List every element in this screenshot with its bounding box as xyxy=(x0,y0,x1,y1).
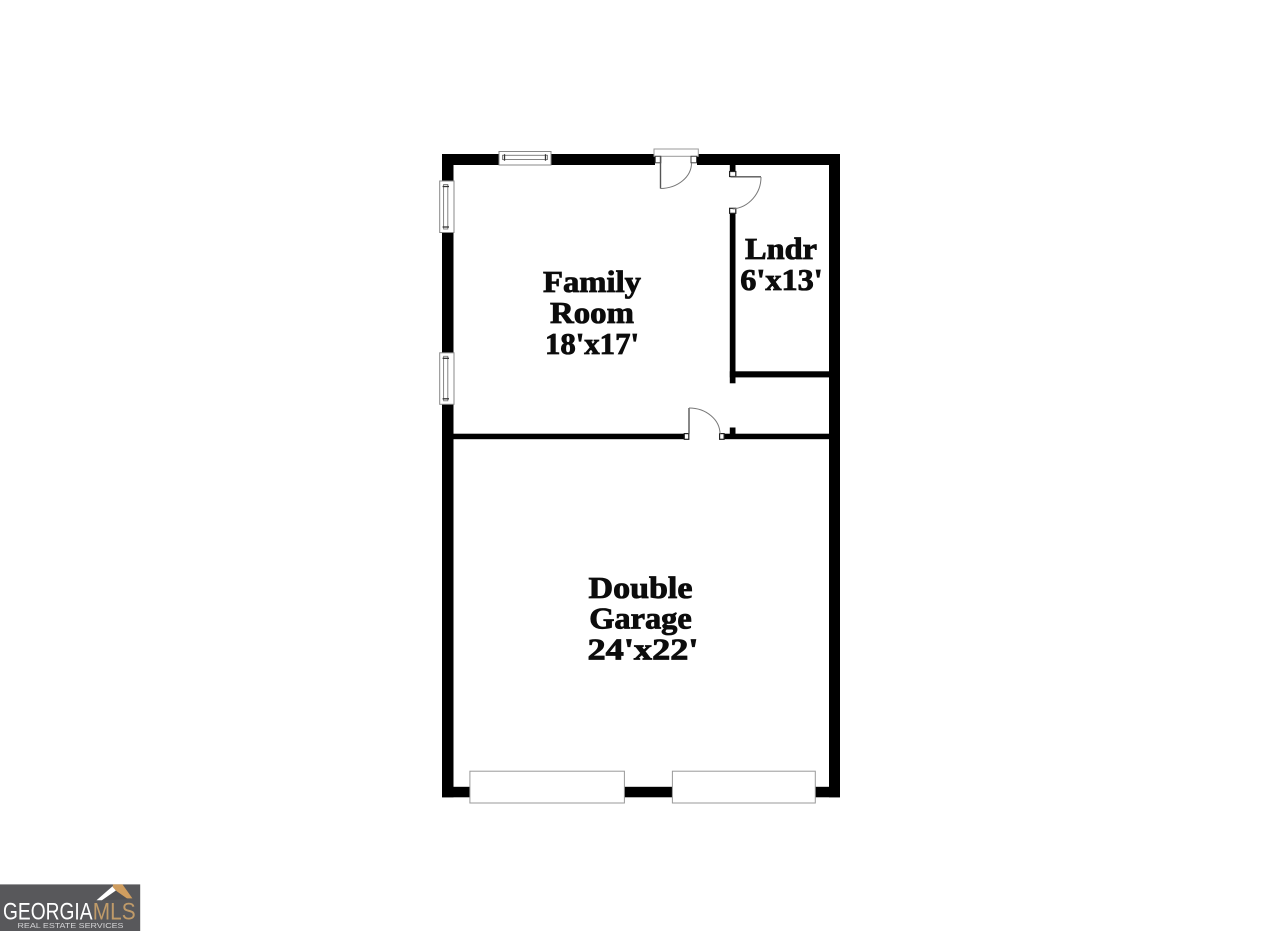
svg-text:Garage: Garage xyxy=(589,602,692,636)
svg-text:6'x13': 6'x13' xyxy=(740,263,823,297)
svg-text:REAL ESTATE SERVICES: REAL ESTATE SERVICES xyxy=(18,921,124,930)
svg-text:24'x22': 24'x22' xyxy=(588,632,699,666)
svg-text:18'x17': 18'x17' xyxy=(545,327,639,361)
svg-text:Double: Double xyxy=(589,571,693,605)
svg-text:Room: Room xyxy=(550,296,634,330)
svg-text:Lndr: Lndr xyxy=(745,232,817,266)
svg-text:Family: Family xyxy=(543,265,641,299)
